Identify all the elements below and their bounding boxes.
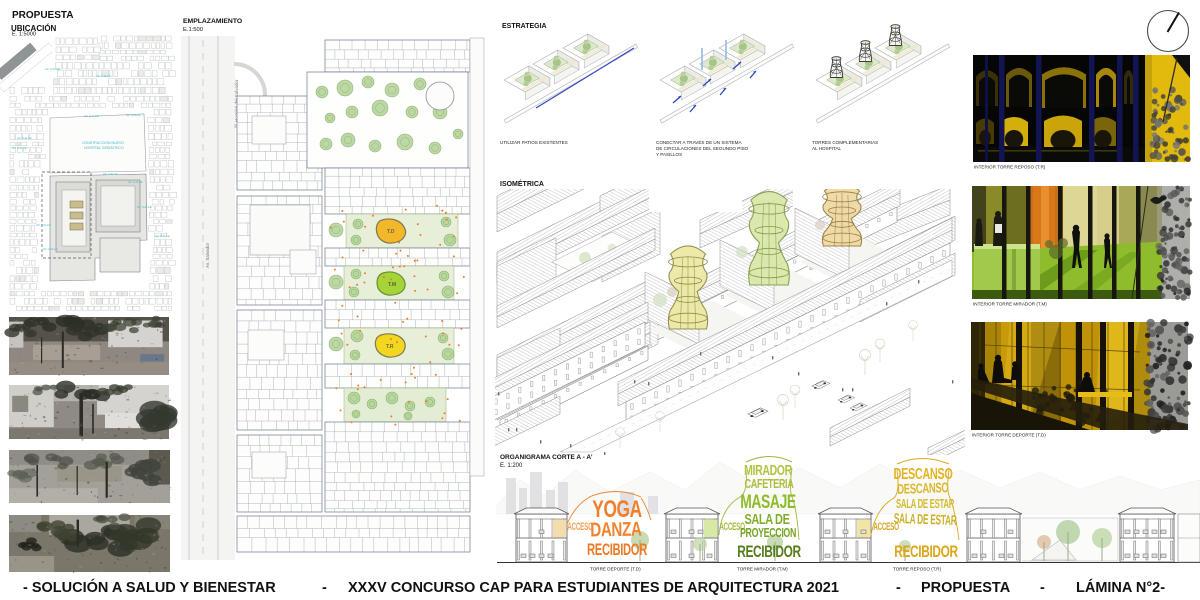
svg-text:RECIBIDOR: RECIBIDOR: [587, 541, 648, 560]
svg-text:- SOLUCIÓN A SALUD Y BIENESTAR: - SOLUCIÓN A SALUD Y BIENESTAR: [23, 578, 276, 596]
svg-text:E.1:500: E.1:500: [183, 27, 203, 33]
svg-text:HOSPITAL GERIÁTRICO: HOSPITAL GERIÁTRICO: [84, 146, 124, 150]
svg-text:TORRE MIRADOR (T.M): TORRE MIRADOR (T.M): [737, 567, 788, 572]
svg-text:RECIBIDOR: RECIBIDOR: [737, 543, 801, 562]
svg-text:UTILIZAR PATIOS EXISTENTES: UTILIZAR PATIOS EXISTENTES: [500, 140, 568, 145]
svg-text:PROPUESTA: PROPUESTA: [12, 10, 74, 21]
svg-text:AV. CALLE: AV. CALLE: [36, 223, 51, 227]
svg-text:AV. CALLE: AV. CALLE: [103, 172, 118, 176]
svg-text:SALA DE ESTAR: SALA DE ESTAR: [894, 512, 958, 529]
svg-text:-: -: [896, 580, 901, 596]
svg-text:T.M: T.M: [388, 282, 396, 288]
svg-text:DANZA: DANZA: [590, 518, 642, 541]
svg-text:TORRE REPOSO (T.R): TORRE REPOSO (T.R): [893, 567, 942, 572]
svg-text:AV. CALLE: AV. CALLE: [84, 114, 99, 118]
svg-text:T.D: T.D: [387, 229, 395, 235]
svg-text:PROYECCION: PROYECCION: [740, 526, 796, 540]
svg-text:ACCESO: ACCESO: [567, 520, 593, 532]
svg-text:-: -: [1040, 580, 1045, 596]
svg-text:ORGANIGRAMA CORTE A - A’: ORGANIGRAMA CORTE A - A’: [500, 454, 593, 461]
svg-text:CONSTRUCCIÓN NUEVO: CONSTRUCCIÓN NUEVO: [82, 140, 124, 145]
svg-text:RECIBIDOR: RECIBIDOR: [894, 543, 958, 562]
svg-text:E. 1:200: E. 1:200: [500, 463, 523, 469]
svg-text:AV. CALLE: AV. CALLE: [43, 247, 58, 251]
svg-text:AV. CALLE: AV. CALLE: [96, 74, 111, 78]
svg-text:AV. CALLE: AV. CALLE: [45, 67, 60, 71]
svg-text:XXXV CONCURSO CAP PARA ESTUDIA: XXXV CONCURSO CAP PARA ESTUDIANTES DE AR…: [348, 580, 839, 596]
svg-text:CONECTAR A TRAVÉS DE UN SISTEM: CONECTAR A TRAVÉS DE UN SISTEMA: [656, 139, 742, 145]
svg-text:INTERIOR TORRE DEPORTE (T.D): INTERIOR TORRE DEPORTE (T.D): [972, 433, 1046, 438]
svg-text:T.R: T.R: [386, 344, 394, 350]
svg-text:-: -: [322, 580, 327, 596]
svg-text:TORRES COMPLEMENTARIAS: TORRES COMPLEMENTARIAS: [812, 140, 878, 145]
svg-text:LÁMINA N°2-: LÁMINA N°2-: [1076, 579, 1165, 596]
svg-text:AV. CALLE: AV. CALLE: [155, 234, 170, 238]
svg-text:ISOMÉTRICA: ISOMÉTRICA: [500, 179, 544, 188]
svg-text:CAFETERIA: CAFETERIA: [745, 478, 794, 492]
svg-text:EMPLAZAMIENTO: EMPLAZAMIENTO: [183, 18, 242, 25]
svg-text:SALA DE ESTAR: SALA DE ESTAR: [896, 497, 955, 512]
svg-text:E. 1:5000: E. 1:5000: [12, 32, 36, 38]
svg-text:ESTRATEGIA: ESTRATEGIA: [502, 23, 547, 30]
svg-text:Y PASILLOS: Y PASILLOS: [656, 152, 682, 157]
svg-text:INTERIOR TORRE REPOSO (T.R): INTERIOR TORRE REPOSO (T.R): [974, 165, 1046, 170]
svg-text:SALA DE: SALA DE: [744, 510, 790, 527]
svg-text:AV. CALLE: AV. CALLE: [128, 180, 143, 184]
svg-text:DESCANSO: DESCANSO: [897, 479, 949, 497]
svg-text:DE CIRCULACIONES DEL SEGUNDO P: DE CIRCULACIONES DEL SEGUNDO PISO: [656, 146, 749, 151]
svg-text:TORRE DEPORTE (T.D): TORRE DEPORTE (T.D): [590, 567, 641, 572]
svg-text:AV. CALLE: AV. CALLE: [12, 146, 27, 150]
svg-text:Av. Salvador: Av. Salvador: [205, 242, 210, 268]
svg-text:AV. CALLE: AV. CALLE: [17, 136, 32, 140]
svg-text:PROPUESTA: PROPUESTA: [921, 580, 1011, 596]
svg-text:AV. CALLE: AV. CALLE: [137, 205, 152, 209]
svg-text:INTERIOR TORRE MIRADOR (T.M): INTERIOR TORRE MIRADOR (T.M): [973, 302, 1047, 307]
svg-text:AL HOSPITAL: AL HOSPITAL: [812, 146, 842, 151]
svg-text:MIRADOR: MIRADOR: [744, 461, 793, 478]
svg-text:AV. CALLE: AV. CALLE: [126, 113, 141, 117]
